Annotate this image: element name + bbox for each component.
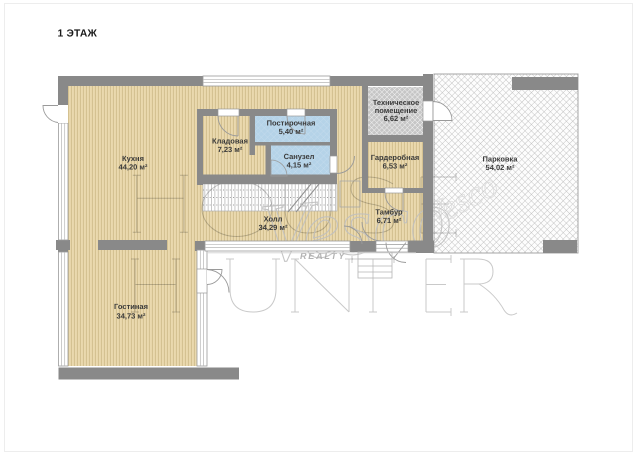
svg-text:6,62 м²: 6,62 м²: [384, 114, 409, 123]
svg-text:Гостиная: Гостиная: [114, 302, 148, 311]
svg-text:6,53 м²: 6,53 м²: [383, 162, 408, 171]
svg-text:6,71 м²: 6,71 м²: [377, 216, 402, 225]
svg-text:5,40 м²: 5,40 м²: [279, 127, 304, 136]
svg-text:44,20 м²: 44,20 м²: [119, 163, 148, 172]
svg-text:1 ЭТАЖ: 1 ЭТАЖ: [58, 28, 98, 39]
svg-text:34,29 м²: 34,29 м²: [259, 223, 288, 232]
svg-text:54,02 м²: 54,02 м²: [486, 163, 515, 172]
svg-text:4,15 м²: 4,15 м²: [287, 161, 312, 170]
svg-text:34,73 м²: 34,73 м²: [117, 312, 146, 321]
svg-text:7,23 м²: 7,23 м²: [218, 145, 243, 154]
